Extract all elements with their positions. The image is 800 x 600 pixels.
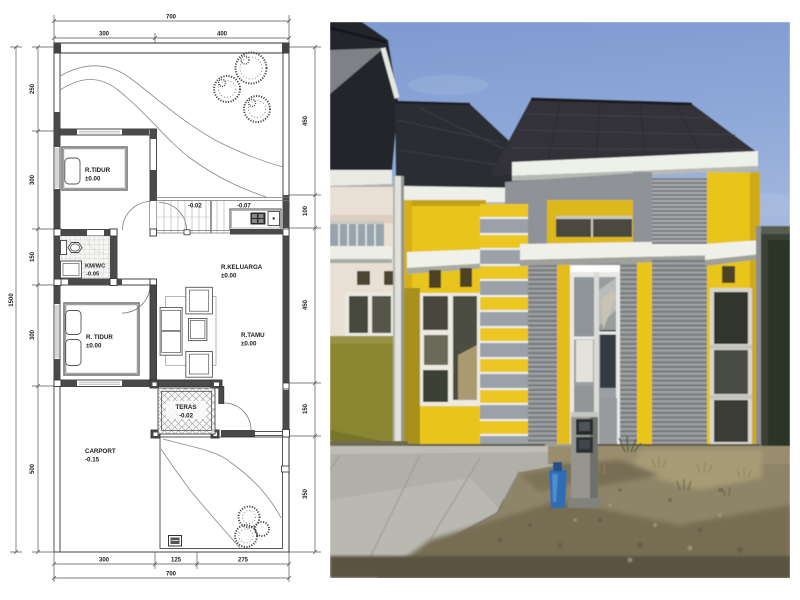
svg-text:275: 275 (238, 558, 249, 564)
svg-text:150: 150 (303, 403, 309, 414)
svg-text:500: 500 (30, 463, 36, 474)
svg-text:±0.00: ±0.00 (241, 341, 257, 348)
svg-text:R.TIDUR: R.TIDUR (85, 167, 111, 174)
svg-text:300: 300 (30, 174, 36, 185)
svg-text:R. TIDUR: R. TIDUR (86, 334, 113, 341)
svg-text:300: 300 (30, 329, 36, 340)
svg-text:TERAS: TERAS (176, 404, 197, 411)
svg-text:700: 700 (166, 572, 177, 578)
svg-text:100: 100 (303, 205, 309, 216)
svg-text:300: 300 (99, 32, 110, 38)
svg-text:1500: 1500 (9, 293, 15, 307)
svg-text:700: 700 (166, 15, 177, 21)
svg-text:±0.00: ±0.00 (221, 273, 237, 280)
svg-text:R.TAMU: R.TAMU (241, 332, 265, 339)
svg-text:150: 150 (30, 251, 36, 262)
svg-text:-0.15: -0.15 (85, 457, 100, 464)
svg-text:±0.00: ±0.00 (85, 176, 101, 183)
svg-text:250: 250 (30, 83, 36, 94)
svg-text:300: 300 (99, 558, 110, 564)
svg-text:450: 450 (303, 115, 309, 126)
svg-text:450: 450 (303, 299, 309, 310)
svg-text:±0.00: ±0.00 (86, 343, 102, 350)
svg-text:CARPORT: CARPORT (85, 448, 116, 455)
svg-text:125: 125 (171, 558, 182, 564)
svg-text:R.KELUARGA: R.KELUARGA (221, 264, 263, 271)
svg-text:KM/WC: KM/WC (85, 264, 106, 270)
svg-text:-0.05: -0.05 (86, 272, 100, 278)
svg-text:-0.02: -0.02 (188, 204, 202, 210)
svg-text:400: 400 (217, 32, 228, 38)
svg-text:-0.02: -0.02 (179, 413, 194, 420)
svg-text:350: 350 (303, 488, 309, 499)
svg-text:-0.07: -0.07 (237, 204, 251, 210)
